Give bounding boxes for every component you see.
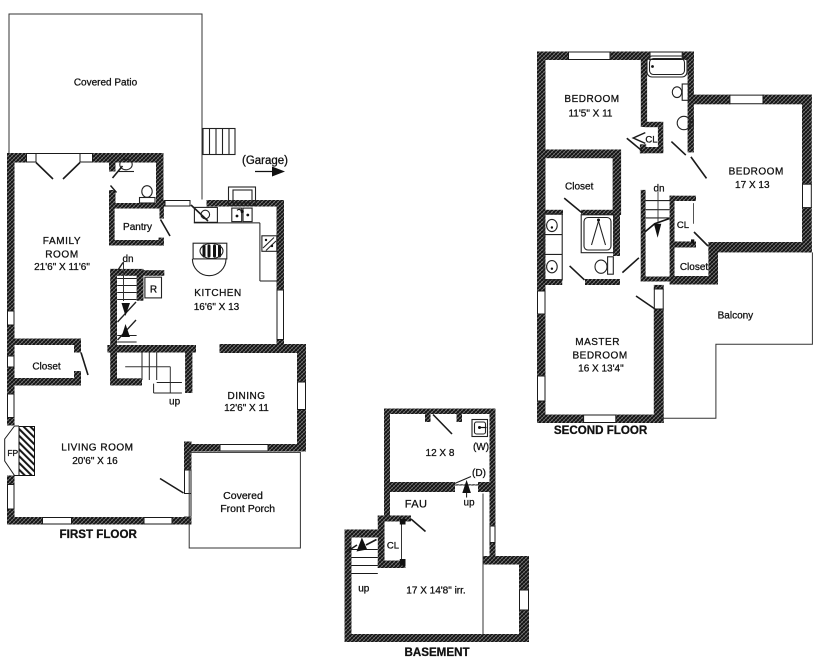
svg-text:ROOM: ROOM <box>45 250 79 261</box>
svg-text:Closet: Closet <box>680 262 709 273</box>
svg-text:17 X 13: 17 X 13 <box>735 180 770 191</box>
svg-text:BEDROOM: BEDROOM <box>564 94 619 105</box>
svg-text:MASTER: MASTER <box>575 337 620 348</box>
svg-text:16 X 13'4": 16 X 13'4" <box>578 364 624 375</box>
svg-text:Front Porch: Front Porch <box>220 503 275 515</box>
svg-text:Closet: Closet <box>32 362 61 373</box>
svg-text:(Garage): (Garage) <box>242 155 288 167</box>
svg-text:up: up <box>358 584 370 595</box>
svg-text:(W): (W) <box>473 442 489 453</box>
svg-text:BEDROOM: BEDROOM <box>573 350 628 361</box>
svg-text:R: R <box>150 285 157 296</box>
svg-text:(D): (D) <box>472 468 486 479</box>
svg-text:up: up <box>463 498 475 509</box>
svg-text:17 X 14'8" irr.: 17 X 14'8" irr. <box>406 586 465 597</box>
svg-text:CL: CL <box>677 220 689 231</box>
svg-text:dn: dn <box>653 184 664 195</box>
svg-text:Pantry: Pantry <box>123 222 152 233</box>
svg-text:12 X 8: 12 X 8 <box>426 448 455 459</box>
svg-text:12'6" X 11: 12'6" X 11 <box>224 403 269 414</box>
svg-text:Closet: Closet <box>565 182 594 193</box>
svg-text:Covered Patio: Covered Patio <box>74 78 138 89</box>
svg-text:SECOND FLOOR: SECOND FLOOR <box>554 424 648 437</box>
svg-text:KITCHEN: KITCHEN <box>194 288 241 299</box>
svg-text:Balcony: Balcony <box>718 311 754 322</box>
svg-text:16'6" X 13: 16'6" X 13 <box>194 302 240 313</box>
svg-text:FP: FP <box>7 448 18 458</box>
svg-text:20'6" X 16: 20'6" X 16 <box>72 456 118 467</box>
svg-text:BEDROOM: BEDROOM <box>729 167 784 178</box>
svg-text:21'6" X 11'6": 21'6" X 11'6" <box>34 262 90 273</box>
svg-text:Covered: Covered <box>223 490 263 502</box>
svg-text:LIVING ROOM: LIVING ROOM <box>61 443 133 454</box>
svg-text:BASEMENT: BASEMENT <box>404 646 469 659</box>
svg-text:up: up <box>169 397 181 408</box>
svg-text:11'5" X 11: 11'5" X 11 <box>568 109 612 120</box>
svg-text:CL: CL <box>645 135 657 146</box>
svg-text:FIRST FLOOR: FIRST FLOOR <box>60 528 138 541</box>
svg-text:FAMILY: FAMILY <box>43 236 81 247</box>
svg-text:CL: CL <box>387 541 399 552</box>
svg-text:DINING: DINING <box>228 391 266 402</box>
svg-text:dn: dn <box>122 254 133 265</box>
svg-text:FAU: FAU <box>405 499 428 511</box>
